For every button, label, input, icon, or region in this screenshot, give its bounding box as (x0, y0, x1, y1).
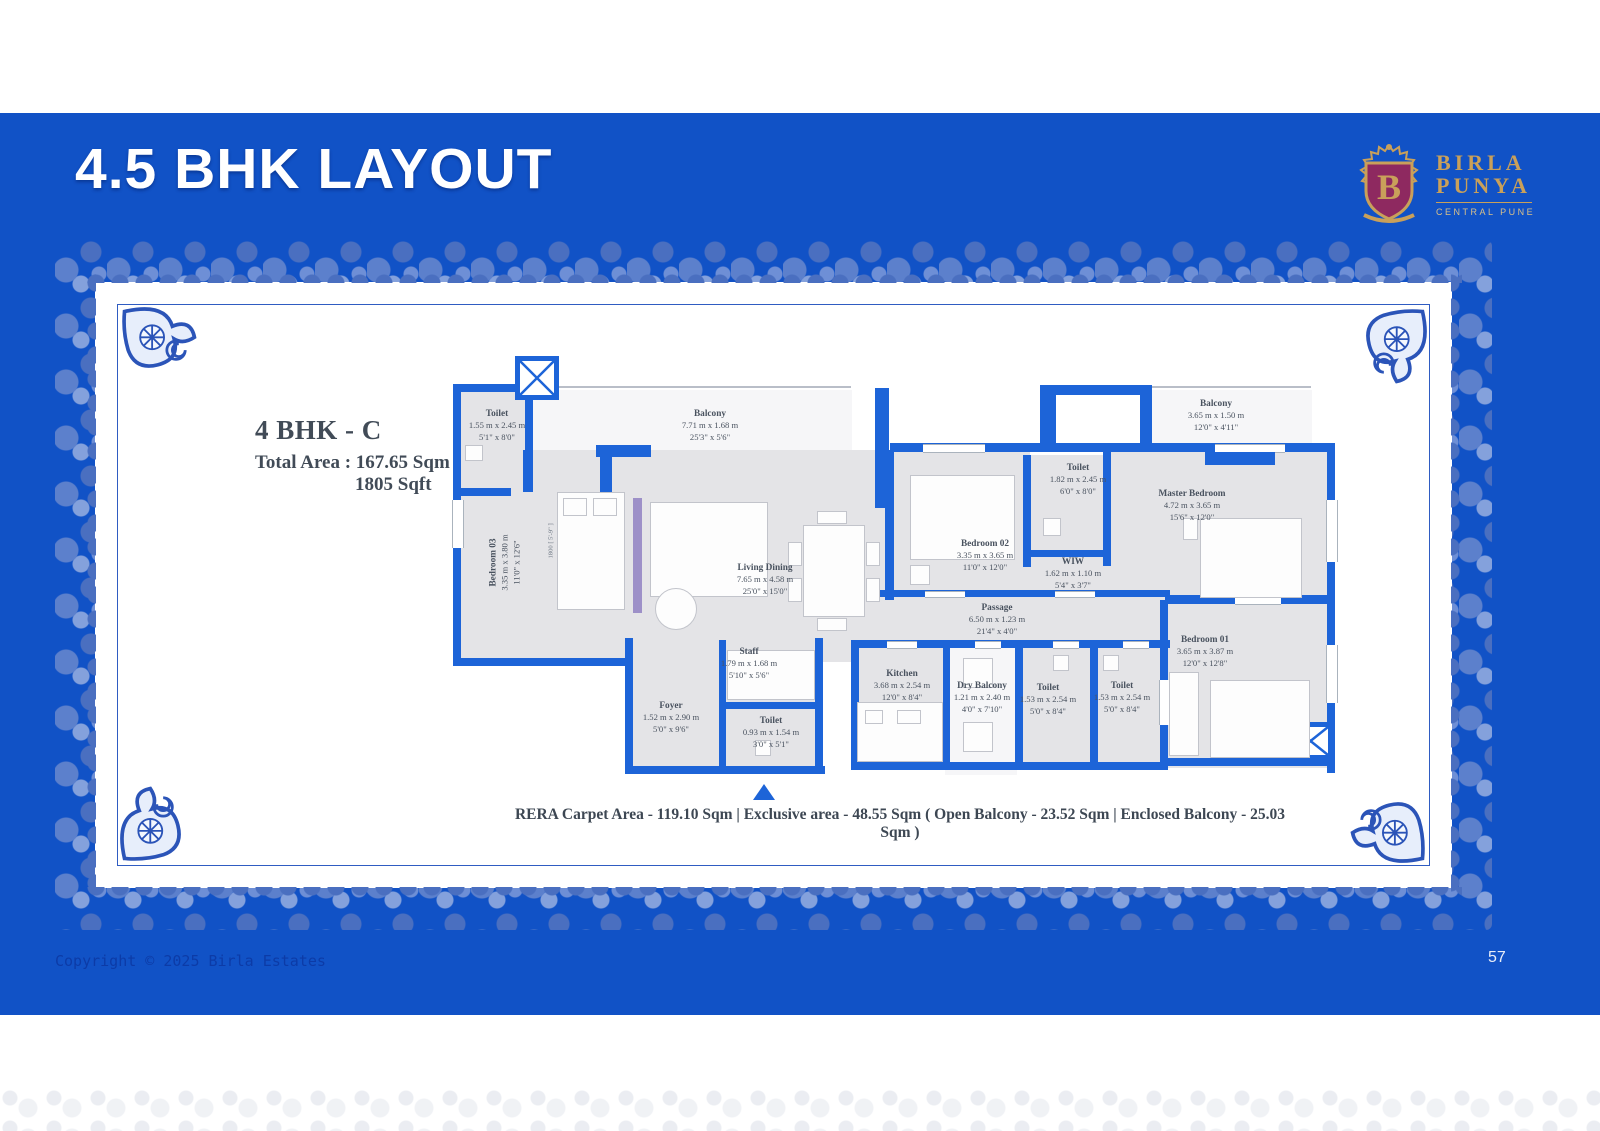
room-label-staff: Staff1.79 m x 1.68 m5'10" x 5'6" (708, 646, 790, 681)
decorative-element: 5'1" x 8'0" (460, 432, 534, 443)
room-label-foyer: Foyer1.52 m x 2.90 m5'0" x 9'6" (630, 700, 712, 735)
decorative-element: 1.82 m x 2.45 m (1033, 474, 1123, 485)
furniture (1053, 655, 1069, 671)
wall-segment (455, 658, 633, 666)
wall-segment (851, 762, 1163, 770)
wall-segment (868, 590, 1170, 597)
decorative-element: 12'0" x 4'11" (1156, 422, 1276, 433)
brand-tagline: CENTRAL PUNE (1436, 207, 1535, 217)
rera-carpet-area-note: RERA Carpet Area - 119.10 Sqm | Exclusiv… (500, 806, 1300, 842)
furniture (866, 542, 880, 566)
decorative-element: B (1377, 167, 1401, 207)
entrance-arrow-icon (753, 784, 775, 800)
brand-name-line1: BIRLA (1436, 151, 1535, 174)
furniture (1200, 518, 1302, 598)
decorative-element: 5'0" x 8'4" (1082, 704, 1162, 715)
crest-icon: B (1352, 141, 1426, 227)
room-label-passage: Passage6.50 m x 1.23 m21'4" x 4'0" (937, 602, 1057, 637)
brand-name-line2: PUNYA (1436, 174, 1535, 197)
room-label-toilet-03: Toilet1.53 m x 2.54 m5'0" x 8'4" (1008, 682, 1088, 717)
wall-segment (523, 450, 533, 492)
copyright-text: Copyright © 2025 Birla Estates (55, 952, 326, 970)
window (452, 500, 464, 548)
room-label-living-dining: Living Dining7.65 m x 4.58 m25'0" x 15'0… (705, 562, 825, 597)
decorative-element: Toilet (460, 408, 534, 420)
decorative-element: 12'0" x 8'4" (860, 692, 944, 703)
decorative-element: 6.50 m x 1.23 m (937, 614, 1057, 625)
decorative-element: 6'0" x 8'0" (1033, 486, 1123, 497)
furniture (655, 588, 697, 630)
furniture (1043, 518, 1061, 536)
decorative-element: Master Bedroom (1130, 488, 1254, 500)
wall-segment (1205, 452, 1275, 465)
decorative-element (520, 361, 554, 395)
decorative-element: 1.53 m x 2.54 m (1082, 692, 1162, 703)
page-title: 4.5 BHK LAYOUT (75, 136, 553, 202)
decorative-element: 1.55 m x 2.45 m (460, 420, 534, 431)
corner-ornament-icon (1336, 306, 1428, 398)
decorative-element: 3.65 m x 3.87 m (1145, 646, 1265, 657)
decorative-element: Staff (708, 646, 790, 658)
furniture (1103, 655, 1119, 671)
decorative-element: Bedroom 01 (1145, 634, 1265, 646)
window (975, 641, 1001, 649)
decorative-element: 7.65 m x 4.58 m (705, 574, 825, 585)
decorative-element: 7.71 m x 1.68 m (650, 420, 770, 431)
bed-size-tag: 1800 [ 5'-9" ] (548, 499, 555, 559)
frame-scallop (85, 269, 1462, 283)
wall-segment (1055, 385, 1147, 395)
decorative-element: Balcony (1156, 398, 1276, 410)
unit-summary: 4 BHK - C Total Area : 167.65 Sqm 1805 S… (255, 415, 450, 496)
decorative-element: Passage (937, 602, 1057, 614)
decorative-element: 1.62 m x 1.10 m (1032, 568, 1114, 579)
decorative-element: Balcony (650, 408, 770, 420)
wall-segment (1040, 385, 1056, 447)
furniture (963, 722, 993, 752)
room-label-toilet-01: Toilet1.53 m x 2.54 m5'0" x 8'4" (1082, 680, 1162, 715)
furniture (1210, 680, 1310, 758)
wardrobe-shutter (633, 498, 642, 613)
room-label-toilet-staff: Toilet0.93 m x 1.54 m3'0" x 5'1" (730, 715, 812, 750)
decorative-element: 5'0" x 9'6" (630, 724, 712, 735)
furniture (817, 511, 847, 524)
brand-logo: B BIRLA PUNYA CENTRAL PUNE (1352, 138, 1582, 230)
window (923, 444, 985, 453)
window (1326, 645, 1338, 703)
decorative-element: Foyer (630, 700, 712, 712)
decorative-element: 5'4" x 3'7" (1032, 580, 1114, 591)
decorative-element: 11'0" x 12'0" (925, 562, 1045, 573)
decorative-element: 1.53 m x 2.54 m (1008, 694, 1088, 705)
decorative-element: Living Dining (705, 562, 825, 574)
room-label-wiw: WIW1.62 m x 1.10 m5'4" x 3'7" (1032, 556, 1114, 591)
frame-scallop (1451, 272, 1465, 898)
corner-ornament-icon (1336, 772, 1428, 864)
decorative-element (1386, 144, 1392, 150)
decorative-element: 3.68 m x 2.54 m (860, 680, 944, 691)
room-label-bedroom-01: Bedroom 013.65 m x 3.87 m12'0" x 12'8" (1145, 634, 1265, 669)
decorative-element: BIRLA PUNYA CENTRAL PUNE (1436, 151, 1535, 217)
decorative-element: Toilet (1033, 462, 1123, 474)
window (1326, 500, 1338, 562)
room-label-toilet-entry: Toilet1.55 m x 2.45 m5'1" x 8'0" (460, 408, 534, 443)
frame-scallop (82, 272, 96, 898)
window (1055, 591, 1095, 598)
decorative-element: 4.72 m x 3.65 m (1130, 500, 1254, 511)
corner-ornament-icon (119, 306, 211, 398)
furniture (897, 710, 921, 724)
furniture (465, 445, 483, 461)
furniture (865, 710, 883, 724)
window (887, 641, 917, 649)
decorative-element: Toilet (730, 715, 812, 727)
decorative-element: 11'0" x 12'6" (511, 507, 522, 617)
decorative-element: 0.93 m x 1.54 m (730, 727, 812, 738)
room-label-bedroom-03: Bedroom 033.35 m x 3.80 m11'0" x 12'6" (488, 507, 523, 617)
wall-segment (885, 450, 894, 600)
window (1053, 641, 1079, 649)
furniture (817, 618, 847, 631)
decorative-element: Kitchen (860, 668, 944, 680)
unit-name: 4 BHK - C (255, 415, 450, 446)
shaft-box (515, 356, 559, 400)
decorative-element: Toilet (1008, 682, 1088, 694)
furniture (866, 578, 880, 602)
decorative-element: Bedroom 02 (925, 538, 1045, 550)
bottom-texture (0, 1088, 1600, 1131)
window (925, 591, 965, 598)
decorative-element: Toilet (1082, 680, 1162, 692)
room-label-master-bedroom: Master Bedroom4.72 m x 3.65 m15'6" x 12'… (1130, 488, 1254, 523)
furniture (563, 498, 587, 516)
frame-scallop (85, 887, 1462, 901)
page-number: 57 (1488, 949, 1506, 967)
room-label-balcony-main: Balcony7.71 m x 1.68 m25'3" x 5'6" (650, 408, 770, 443)
room-label-bedroom-02: Bedroom 023.35 m x 3.65 m11'0" x 12'0" (925, 538, 1045, 573)
corner-ornament-icon (119, 772, 211, 864)
room-label-toilet-master: Toilet1.82 m x 2.45 m6'0" x 8'0" (1033, 462, 1123, 497)
furniture (1169, 672, 1199, 756)
unit-total-area-sqft: 1805 Sqft (355, 474, 450, 496)
decorative-element: 21'4" x 4'0" (937, 626, 1057, 637)
decorative-element: Bedroom 03 (488, 507, 500, 617)
balcony-railing (1143, 386, 1311, 388)
decorative-element: 25'3" x 5'6" (650, 432, 770, 443)
decorative-element: 1.79 m x 1.68 m (708, 658, 790, 669)
decorative-element: 3.35 m x 3.80 m (500, 507, 511, 617)
floor-plan: Toilet1.55 m x 2.45 m5'1" x 8'0" Balcony… (455, 350, 1335, 812)
decorative-element: 3'0" x 5'1" (730, 739, 812, 750)
decorative-element: 25'0" x 15'0" (705, 586, 825, 597)
wall-segment (453, 488, 511, 496)
decorative-element: 12'0" x 12'8" (1145, 658, 1265, 669)
balcony-railing (533, 386, 851, 388)
wall-segment (1140, 385, 1152, 447)
decorative-element: 5'0" x 8'4" (1008, 706, 1088, 717)
decorative-element: 15'6" x 12'0" (1130, 512, 1254, 523)
furniture (593, 498, 617, 516)
decorative-element: WIW (1032, 556, 1114, 568)
decorative-element (520, 361, 554, 395)
brand-divider (1436, 202, 1532, 203)
room-label-kitchen: Kitchen3.68 m x 2.54 m12'0" x 8'4" (860, 668, 944, 703)
decorative-element: 5'10" x 5'6" (708, 670, 790, 681)
decorative-element: 3.35 m x 3.65 m (925, 550, 1045, 561)
decorative-element: 1.52 m x 2.90 m (630, 712, 712, 723)
decorative-element: 3.65 m x 1.50 m (1156, 410, 1276, 421)
room-label-balcony-master: Balcony3.65 m x 1.50 m12'0" x 4'11" (1156, 398, 1276, 433)
unit-total-area: Total Area : 167.65 Sqm (255, 452, 450, 474)
wall-segment (723, 702, 819, 709)
